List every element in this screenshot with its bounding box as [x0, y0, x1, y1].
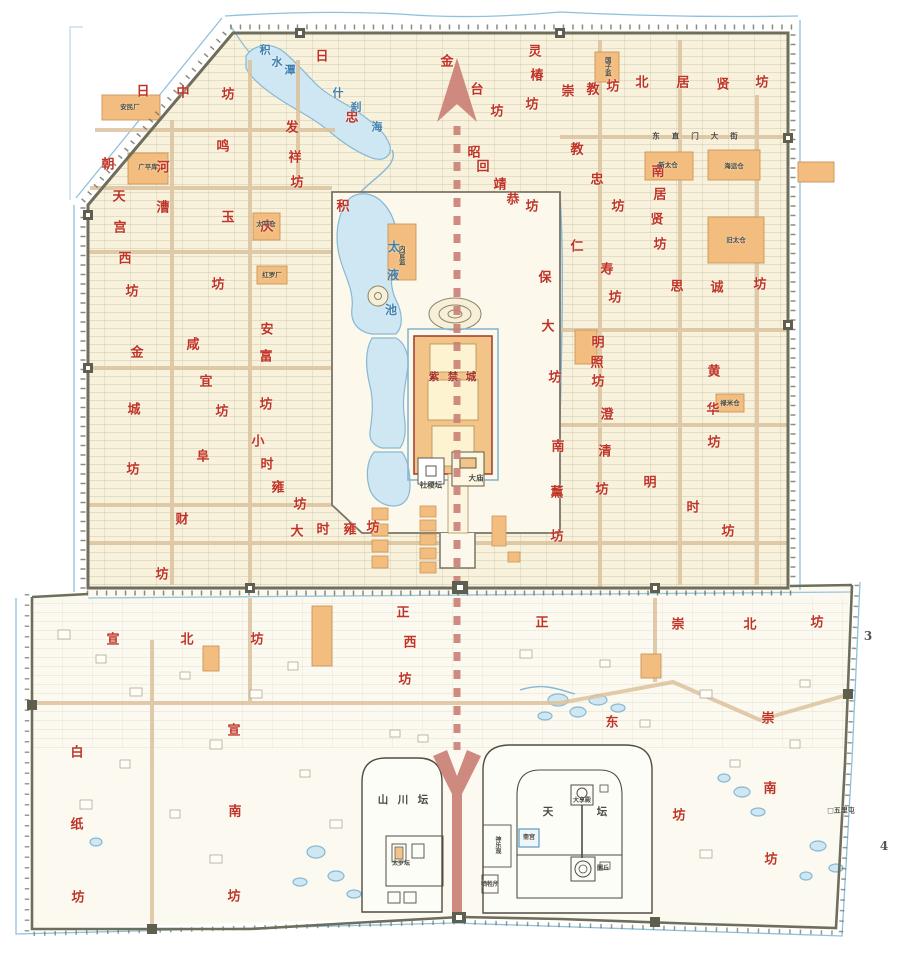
shanchuan-altar-label: 山 [378, 795, 389, 806]
edge-number-4: 4 [880, 840, 888, 852]
xishengsuo-label: 牺牲所 [481, 882, 499, 888]
ward-label: 坊 [591, 376, 604, 389]
ward-label: 崇 [671, 619, 684, 632]
ward-label: 南 [228, 806, 241, 819]
ward-label: 坊 [221, 89, 234, 102]
ward-label: 照 [590, 357, 603, 370]
ward-label: 天 [112, 191, 125, 204]
ward-label: 时 [686, 502, 699, 515]
ward-label: 坊 [293, 499, 306, 512]
ward-label: 坊 [71, 892, 84, 905]
ward-label: 时 [316, 524, 329, 537]
ward-label: 坊 [259, 399, 272, 412]
ward-label: 诚 [710, 282, 723, 295]
ward-label: 安 [260, 324, 273, 337]
ward-label: 西 [403, 637, 416, 650]
ward-label: 思 [670, 281, 683, 294]
taimiao-label: 大庙 [469, 474, 484, 482]
ward-label: 积 [336, 201, 349, 214]
ward-label: 坊 [753, 279, 766, 292]
ward-label: 恭 [506, 194, 519, 207]
ward-label: 回 [476, 161, 489, 174]
ward-label: 小 [251, 436, 264, 449]
ward-label: 咸 [186, 339, 199, 352]
ward-label: 居 [676, 77, 689, 90]
lake-label-shichahai: 海 [372, 122, 383, 133]
ward-label: 崇 [561, 86, 574, 99]
ward-label: 宣 [106, 634, 119, 647]
ward-label: 坊 [548, 372, 561, 385]
historical-beijing-map: 日中坊日忠金台坊灵椿坊崇教坊北居贤坊发祥坊昭回靖恭坊教忠坊南居贤坊河漕朝天宫西坊… [0, 0, 900, 977]
ward-label: 黄 [707, 366, 720, 379]
taisui-altar-label: 太岁坛 [392, 861, 410, 867]
forbidden-city-label: 禁 [448, 372, 459, 383]
ward-label: 坊 [755, 77, 768, 90]
ward-label: 阜 [196, 451, 209, 464]
shenyueguan-label: 神乐观 [494, 836, 500, 854]
xintaicang-label: 新太仓 [658, 162, 678, 169]
ward-label: 财 [175, 514, 188, 527]
ward-label: 漕 [156, 202, 169, 215]
ward-label: 坊 [155, 569, 168, 582]
neiguanjian-label: 内官监 [398, 245, 405, 265]
yuanqiu-label: 圜丘 [597, 866, 609, 872]
ward-label: 宣 [227, 725, 240, 738]
ward-label: 日 [315, 51, 328, 64]
ward-label: 坊 [250, 634, 263, 647]
ward-label: 坊 [764, 854, 777, 867]
ward-label: 昭 [467, 147, 480, 160]
ward-label: 坊 [398, 674, 411, 687]
ward-label: 坊 [721, 526, 734, 539]
ward-label: 坊 [595, 484, 608, 497]
ward-label: 坊 [707, 437, 720, 450]
ward-label: 河 [156, 162, 169, 175]
lake-label-taiyechi: 液 [387, 269, 399, 281]
ward-label: 宫 [113, 222, 126, 235]
ward-label: 坊 [672, 810, 685, 823]
ward-label: 台 [470, 84, 483, 97]
shanchuan-altar-label: 川 [398, 795, 409, 806]
ward-label: 坊 [366, 522, 379, 535]
ward-label: 坊 [215, 406, 228, 419]
sheji-altar-label: 社稷坛 [420, 481, 443, 489]
ward-label: 居 [653, 189, 666, 202]
ward-label: 坊 [550, 531, 563, 544]
ward-label: 坊 [525, 99, 538, 112]
edge-number-3: 3 [864, 630, 872, 642]
ward-label: 南 [763, 783, 776, 796]
ward-label: 寿 [600, 264, 613, 277]
ward-label: 东 [605, 717, 618, 730]
ward-label: 坊 [125, 286, 138, 299]
ward-label: 北 [743, 619, 756, 632]
ward-label: 坊 [490, 106, 503, 119]
ward-label: 时 [260, 459, 273, 472]
ward-label: 城 [127, 404, 140, 417]
ward-label: 坊 [290, 177, 303, 190]
ward-label: 坊 [606, 81, 619, 94]
ward-label: 北 [180, 634, 193, 647]
lake-label-taiyechi: 池 [385, 304, 397, 316]
forbidden-city-label: 紫 [429, 372, 440, 383]
ward-label: 教 [586, 84, 599, 97]
map-labels: 日中坊日忠金台坊灵椿坊崇教坊北居贤坊发祥坊昭回靖恭坊教忠坊南居贤坊河漕朝天宫西坊… [0, 0, 900, 977]
lake-label-shichahai: 刹 [351, 102, 362, 113]
ward-label: 金 [130, 347, 143, 360]
ward-label: 鸣 [216, 141, 229, 154]
ward-label: 雍 [343, 524, 356, 537]
ward-label: 贤 [716, 79, 729, 92]
ward-label: 坊 [810, 617, 823, 630]
ward-label: 椿 [530, 70, 543, 83]
lake-label-shichahai: 什 [333, 88, 344, 99]
ward-label: 北 [635, 77, 648, 90]
zhaigong-label: 斋宫 [523, 835, 535, 841]
ward-label: 白 [70, 747, 83, 760]
ward-label: 保 [538, 272, 551, 285]
ward-label: 坊 [227, 891, 240, 904]
jiutaicang-label: 旧太仓 [726, 237, 746, 244]
hongluochang-label: 红罗厂 [262, 272, 282, 279]
haiyuncang-label: 海运仓 [724, 163, 744, 170]
shanchuan-altar-label: 坛 [418, 795, 429, 806]
ward-label: 雍 [271, 482, 284, 495]
ward-label: 玉 [221, 212, 234, 225]
ward-label: 华 [706, 404, 719, 417]
ward-label: 教 [570, 144, 583, 157]
forbidden-city-label: 城 [466, 372, 477, 383]
ward-label: 澄 [600, 409, 613, 422]
temple-of-heaven-label: 坛 [597, 807, 608, 818]
ward-label: 日 [136, 86, 149, 99]
guozijian-label: 国子监 [604, 56, 611, 76]
ward-label: 忠 [590, 174, 603, 187]
ward-label: 南 [551, 441, 564, 454]
ward-label: 西 [118, 253, 131, 266]
ward-label: 坊 [211, 279, 224, 292]
ward-label: 坊 [525, 201, 538, 214]
ward-label: 大 [290, 526, 303, 539]
daxiangdian-label: 大享殿 [573, 798, 591, 804]
ward-label: 大 [541, 321, 554, 334]
ward-label: 金 [440, 56, 453, 69]
ward-label: 坊 [608, 292, 621, 305]
ward-label: 清 [598, 446, 611, 459]
guangpingku-label: 广平库 [138, 164, 158, 171]
lake-label-jishuitan: 水 [272, 57, 283, 68]
ward-label: 富 [259, 351, 272, 364]
ward-label: 仁 [570, 241, 583, 254]
street-label-dongzhimen: 东直门大街 [652, 132, 750, 140]
ward-label: 贤 [650, 214, 663, 227]
ward-label: 靖 [493, 179, 506, 192]
anminchang-label: 安民厂 [120, 104, 140, 111]
ward-label: 祥 [288, 152, 301, 165]
ward-label: 明 [591, 337, 604, 350]
ward-label: 明 [643, 477, 656, 490]
lake-label-jishuitan: 积 [260, 45, 271, 56]
ward-label: 中 [176, 87, 189, 100]
ward-label: 宜 [199, 376, 212, 389]
ward-label: 纸 [70, 819, 83, 832]
ward-label: 坊 [653, 239, 666, 252]
taipingcang-label: 太平仓 [256, 221, 276, 228]
lumicang-label: 禄米仓 [720, 400, 740, 407]
wulitun-label: □五里屯 [827, 807, 855, 814]
ward-label: 崇 [761, 713, 774, 726]
ward-label: 坊 [611, 201, 624, 214]
ward-label: 正 [535, 617, 548, 630]
ward-label: 薰 [550, 487, 563, 500]
ward-label: 朝 [101, 159, 114, 172]
temple-of-heaven-label: 天 [543, 807, 554, 818]
lake-label-jishuitan: 潭 [285, 65, 296, 76]
ward-label: 发 [285, 122, 298, 135]
ward-label: 正 [396, 607, 409, 620]
ward-label: 灵 [528, 46, 541, 59]
ward-label: 坊 [126, 464, 139, 477]
